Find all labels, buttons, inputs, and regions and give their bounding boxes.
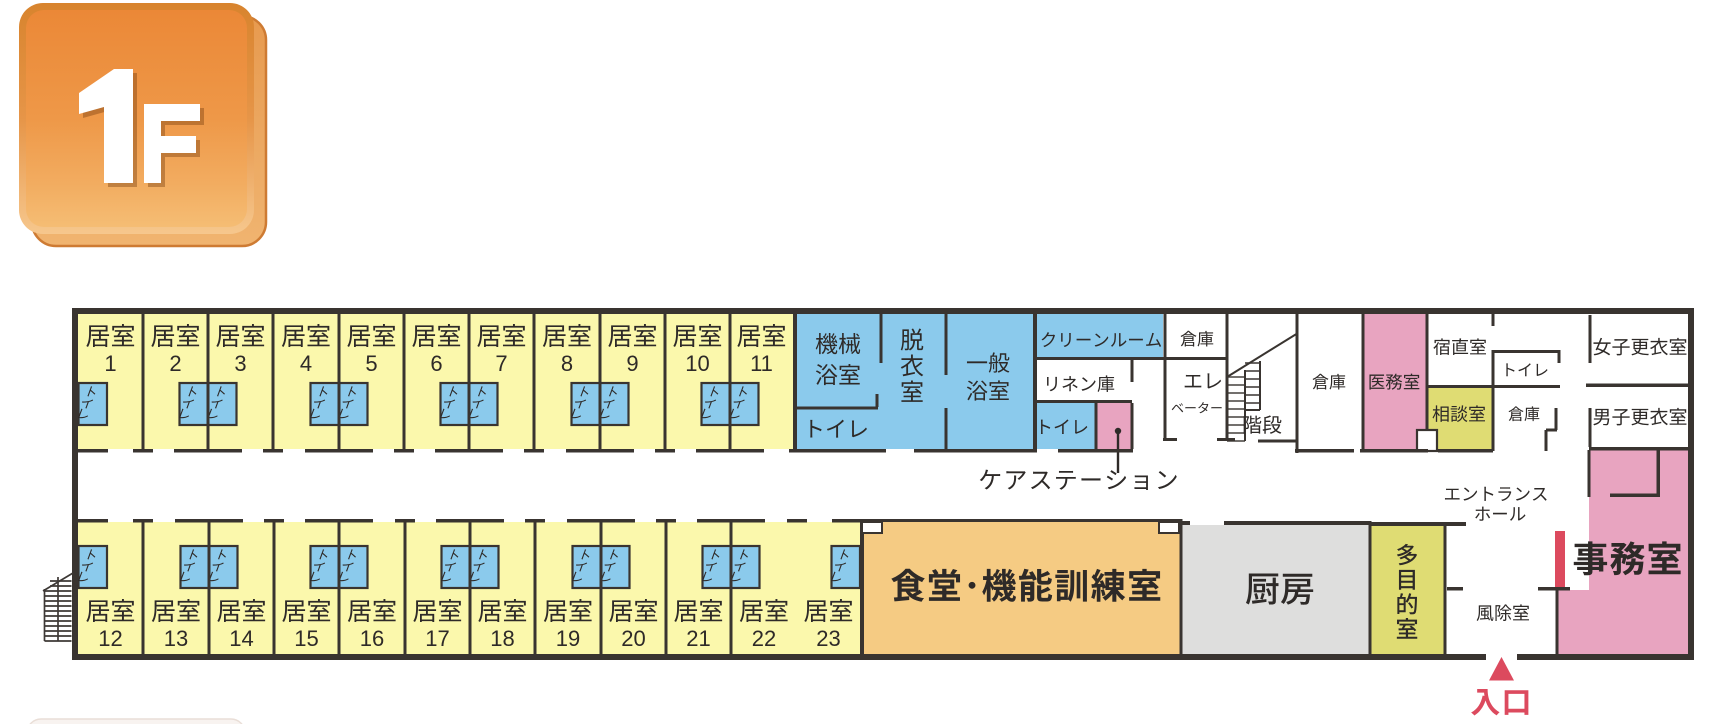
svg-text:3: 3 xyxy=(234,351,246,376)
svg-text:17: 17 xyxy=(425,626,449,651)
svg-text:2: 2 xyxy=(169,351,181,376)
svg-text:14: 14 xyxy=(229,626,253,651)
svg-text:23: 23 xyxy=(816,626,840,651)
svg-text:5: 5 xyxy=(365,351,377,376)
svg-text:7: 7 xyxy=(495,351,507,376)
svg-text:18: 18 xyxy=(490,626,514,651)
svg-text:13: 13 xyxy=(164,626,188,651)
svg-text:10: 10 xyxy=(685,351,709,376)
svg-text:1: 1 xyxy=(104,351,116,376)
svg-text:12: 12 xyxy=(98,626,122,651)
svg-text:11: 11 xyxy=(750,351,773,376)
svg-text:16: 16 xyxy=(360,626,384,651)
svg-text:20: 20 xyxy=(621,626,645,651)
svg-text:4: 4 xyxy=(300,351,312,376)
svg-text:21: 21 xyxy=(686,626,710,651)
svg-text:19: 19 xyxy=(556,626,580,651)
svg-text:15: 15 xyxy=(294,626,318,651)
svg-text:6: 6 xyxy=(430,351,442,376)
svg-text:22: 22 xyxy=(752,626,776,651)
svg-text:9: 9 xyxy=(626,351,638,376)
svg-text:8: 8 xyxy=(561,351,573,376)
